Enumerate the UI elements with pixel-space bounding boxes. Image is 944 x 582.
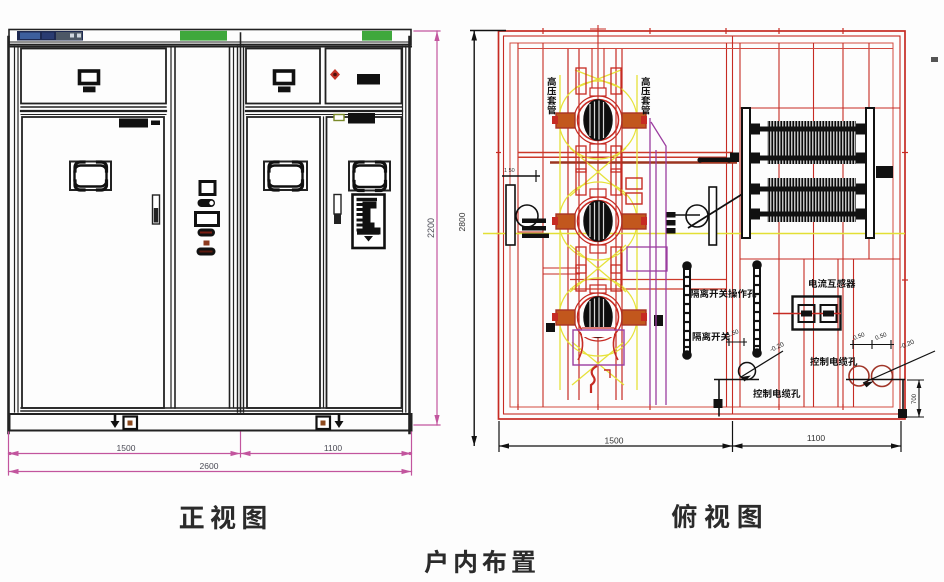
svg-text:1 50: 1 50 bbox=[504, 168, 515, 174]
svg-text:700: 700 bbox=[912, 393, 918, 404]
svg-text:2200: 2200 bbox=[426, 218, 436, 238]
svg-text:2800: 2800 bbox=[457, 212, 467, 231]
svg-text:-0.20: -0.20 bbox=[899, 338, 916, 350]
svg-text:1100: 1100 bbox=[807, 433, 826, 443]
svg-text:1.50: 1.50 bbox=[727, 329, 741, 339]
svg-text:1100: 1100 bbox=[324, 443, 343, 453]
svg-text:-0.20: -0.20 bbox=[769, 341, 786, 354]
svg-text:0.50: 0.50 bbox=[853, 332, 867, 342]
svg-text:1500: 1500 bbox=[117, 443, 136, 453]
svg-text:2600: 2600 bbox=[200, 461, 219, 471]
svg-text:0.50: 0.50 bbox=[875, 332, 889, 342]
svg-text:1500: 1500 bbox=[605, 436, 624, 446]
